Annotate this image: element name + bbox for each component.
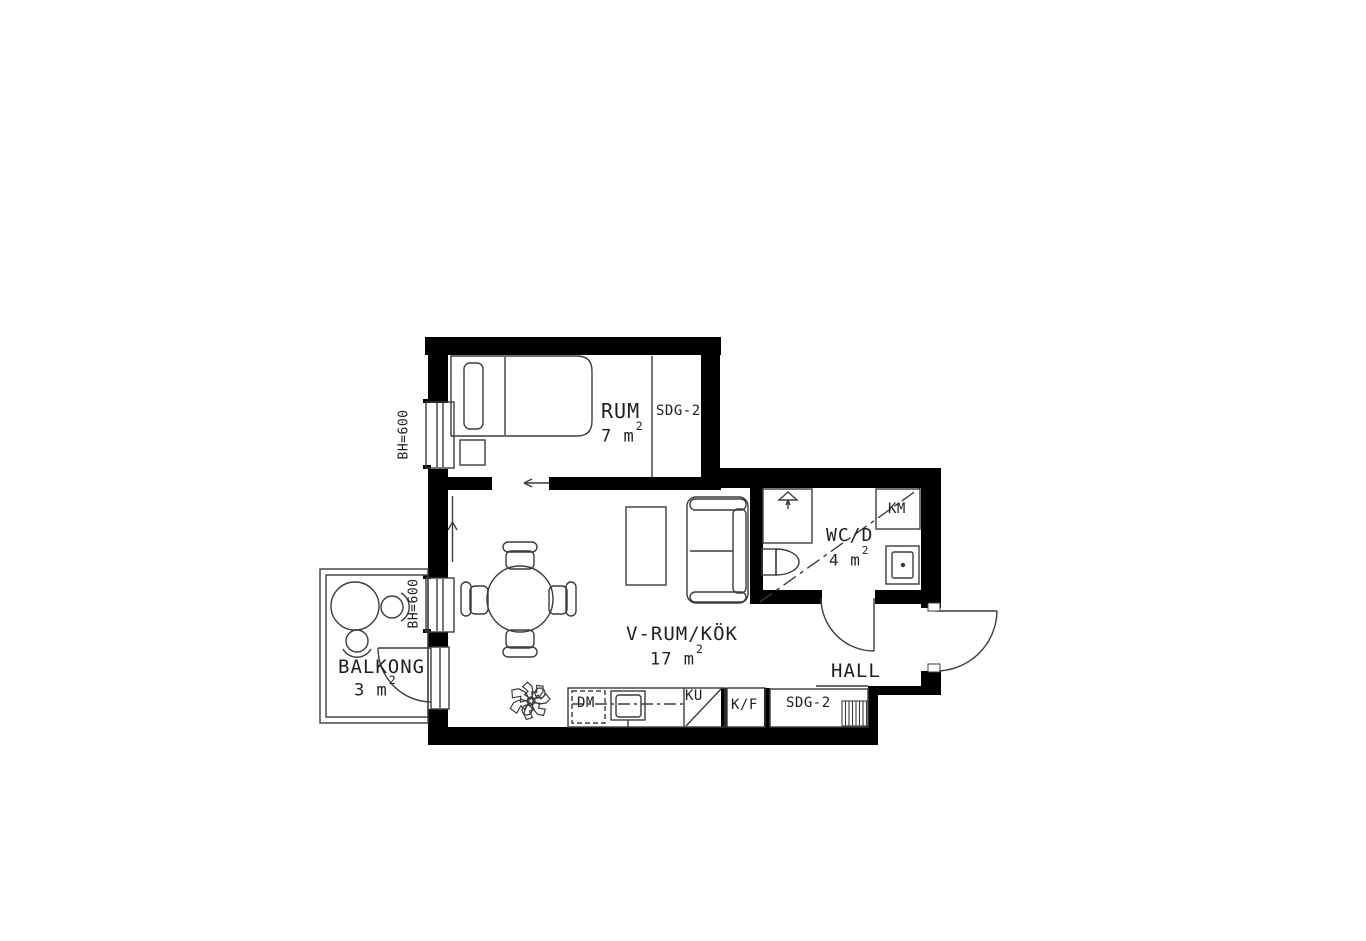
wcd-area: 4 m2 xyxy=(829,551,867,568)
fridge-freezer-label: K/F xyxy=(731,698,758,712)
window-sill-annotation-balkong: BH=600 xyxy=(408,574,421,634)
toilet xyxy=(762,549,799,575)
rum-area-value: 7 m xyxy=(601,427,635,447)
balkong-window xyxy=(426,578,454,632)
balcony-chair xyxy=(381,593,409,621)
dishwasher-label: DM xyxy=(577,696,595,710)
rum-window xyxy=(426,402,454,468)
kitchen-sink xyxy=(611,691,645,727)
balkong-area: 3 m2 xyxy=(354,680,395,700)
hall-label: HALL xyxy=(831,662,881,681)
floorplan-drawing xyxy=(0,0,1366,941)
dining-chair xyxy=(503,542,537,569)
floorplan-canvas: RUM 7 m2 SDG-2 BH=600 BH=600 V-RUM/KÖK 1… xyxy=(0,0,1366,941)
rum-wardrobe-label: SDG-2 xyxy=(656,404,701,418)
balcony-chair xyxy=(343,630,371,657)
window-sill-annotation-rum: BH=600 xyxy=(398,405,411,465)
plant xyxy=(508,682,550,721)
wcd-label: WC/D xyxy=(826,527,873,545)
vrumkok-label: V-RUM/KÖK xyxy=(626,625,738,644)
wc-door-swing xyxy=(821,598,874,651)
dining-chair xyxy=(461,582,488,616)
cooktop-label: KU xyxy=(685,689,703,703)
balkong-area-value: 3 m xyxy=(354,681,388,701)
sofa xyxy=(687,497,748,603)
bathroom-sink xyxy=(886,546,919,584)
balkong-area-sup: 2 xyxy=(389,673,396,687)
vrumkok-area-value: 17 m xyxy=(650,650,695,670)
sliding-door-track xyxy=(448,496,457,562)
balkong-label: BALKONG xyxy=(338,658,425,677)
washing-machine-label: KM xyxy=(888,502,906,516)
wcd-area-value: 4 m xyxy=(829,550,861,569)
nightstand xyxy=(460,440,485,465)
dining-chair xyxy=(503,630,537,657)
entrance-door-swing xyxy=(928,603,997,672)
hall-wardrobe-label: SDG-2 xyxy=(786,696,831,710)
rum-area: 7 m2 xyxy=(601,426,642,446)
rum-area-sup: 2 xyxy=(636,419,643,433)
shower xyxy=(763,489,812,543)
radiator xyxy=(842,701,868,726)
vrumkok-area-sup: 2 xyxy=(696,642,703,656)
wcd-area-sup: 2 xyxy=(862,544,869,557)
sliding-door-opening-arrow xyxy=(524,479,549,487)
rum-label: RUM xyxy=(601,401,640,421)
coffee-table xyxy=(626,507,666,585)
vrumkok-area: 17 m2 xyxy=(650,649,702,669)
bed xyxy=(451,356,592,436)
dining-table xyxy=(487,566,553,632)
balcony-table xyxy=(331,582,379,630)
